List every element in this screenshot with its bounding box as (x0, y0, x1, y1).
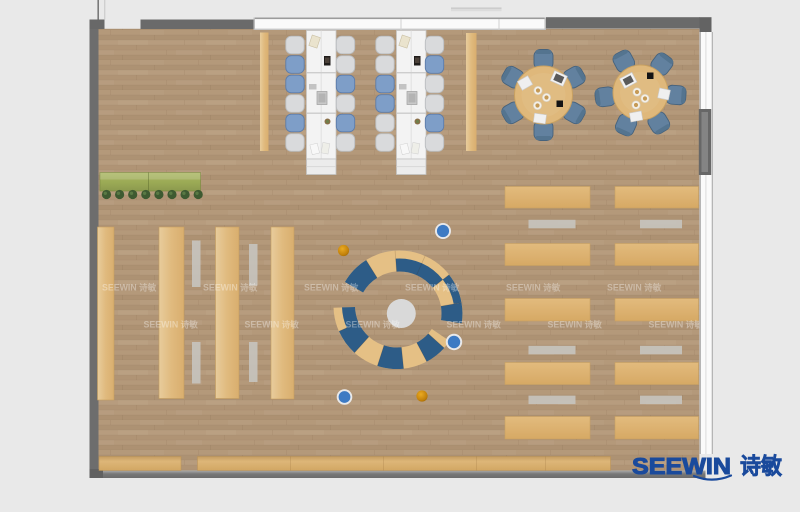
svg-text:SEEWIN 诗敏: SEEWIN 诗敏 (649, 319, 704, 330)
svg-text:诗敏: 诗敏 (740, 453, 782, 479)
svg-text:SEEWIN 诗敏: SEEWIN 诗敏 (548, 319, 603, 330)
svg-text:SEEWIN 诗敏: SEEWIN 诗敏 (102, 282, 157, 293)
svg-text:SEEWIN 诗敏: SEEWIN 诗敏 (447, 319, 502, 330)
svg-text:SEEWIN 诗敏: SEEWIN 诗敏 (506, 282, 561, 293)
svg-text:SEEWIN 诗敏: SEEWIN 诗敏 (607, 282, 662, 293)
svg-text:SEEWIN 诗敏: SEEWIN 诗敏 (405, 282, 460, 293)
svg-text:SEEWIN 诗敏: SEEWIN 诗敏 (346, 319, 401, 330)
svg-text:SEEWIN 诗敏: SEEWIN 诗敏 (245, 319, 300, 330)
svg-text:SEEWIN 诗敏: SEEWIN 诗敏 (144, 319, 199, 330)
svg-text:SEEWIN 诗敏: SEEWIN 诗敏 (203, 282, 258, 293)
svg-text:SEEWIN 诗敏: SEEWIN 诗敏 (304, 282, 359, 293)
svg-text:SEEWIN: SEEWIN (632, 453, 731, 479)
